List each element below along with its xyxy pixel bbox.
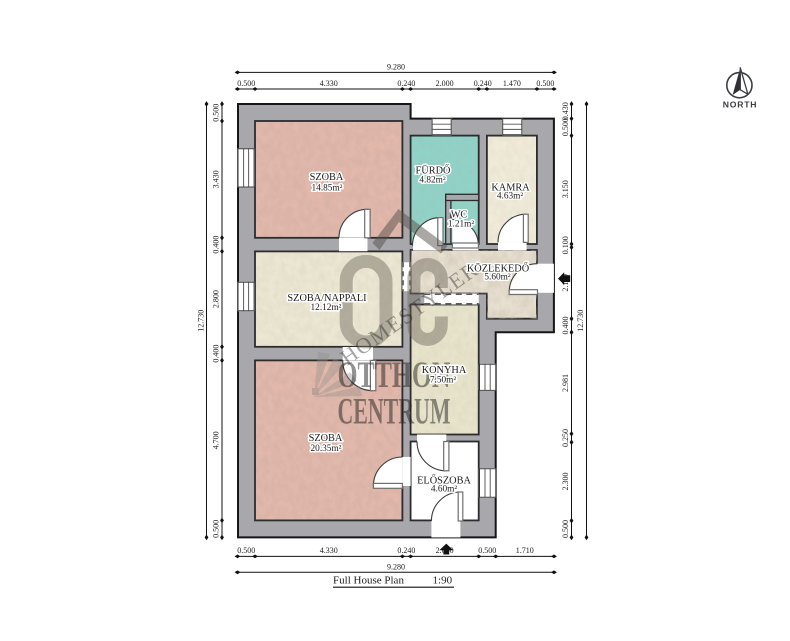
svg-text:SZOBA: SZOBA bbox=[309, 433, 343, 444]
svg-text:0.500: 0.500 bbox=[237, 79, 255, 88]
svg-text:1.470: 1.470 bbox=[503, 79, 521, 88]
svg-text:12.730: 12.730 bbox=[576, 310, 585, 332]
svg-text:0.400: 0.400 bbox=[561, 317, 570, 335]
svg-text:20.35m²: 20.35m² bbox=[311, 444, 342, 454]
svg-text:0.500: 0.500 bbox=[561, 520, 570, 538]
svg-text:0.400: 0.400 bbox=[212, 236, 221, 254]
svg-text:1.710: 1.710 bbox=[516, 546, 534, 555]
svg-text:2.000: 2.000 bbox=[436, 79, 454, 88]
svg-text:3.150: 3.150 bbox=[561, 180, 570, 198]
svg-text:1:90: 1:90 bbox=[433, 575, 453, 587]
svg-text:4.700: 4.700 bbox=[212, 431, 221, 449]
svg-text:1.21m²: 1.21m² bbox=[448, 220, 475, 230]
svg-text:2.300: 2.300 bbox=[561, 473, 570, 491]
svg-text:4.330: 4.330 bbox=[320, 546, 338, 555]
svg-text:3.430: 3.430 bbox=[212, 170, 221, 188]
svg-text:0.500: 0.500 bbox=[237, 546, 255, 555]
svg-text:0.240: 0.240 bbox=[397, 79, 415, 88]
svg-text:0.500: 0.500 bbox=[212, 520, 221, 538]
svg-text:12.730: 12.730 bbox=[197, 310, 206, 332]
svg-text:4.63m²: 4.63m² bbox=[497, 192, 524, 202]
svg-text:0.250: 0.250 bbox=[561, 429, 570, 447]
svg-text:0.100: 0.100 bbox=[561, 236, 570, 254]
svg-text:0.430: 0.430 bbox=[561, 102, 570, 120]
svg-text:0.500: 0.500 bbox=[561, 118, 570, 136]
svg-text:4.82m²: 4.82m² bbox=[419, 175, 446, 185]
svg-text:0.500: 0.500 bbox=[478, 546, 496, 555]
svg-text:Full House Plan: Full House Plan bbox=[333, 575, 404, 587]
svg-text:9.280: 9.280 bbox=[387, 63, 405, 72]
svg-text:9.280: 9.280 bbox=[387, 563, 405, 572]
svg-text:CENTRUM: CENTRUM bbox=[338, 392, 451, 433]
svg-text:0.240: 0.240 bbox=[397, 546, 415, 555]
svg-text:NORTH: NORTH bbox=[723, 100, 758, 110]
svg-text:0.500: 0.500 bbox=[212, 104, 221, 122]
svg-text:0.240: 0.240 bbox=[474, 79, 492, 88]
svg-text:2.800: 2.800 bbox=[212, 290, 221, 308]
svg-text:14.85m²: 14.85m² bbox=[312, 183, 343, 193]
svg-text:12.12m²: 12.12m² bbox=[311, 303, 342, 313]
svg-text:2.981: 2.981 bbox=[561, 374, 570, 392]
svg-text:7.50m²: 7.50m² bbox=[430, 375, 457, 385]
svg-text:0.400: 0.400 bbox=[212, 345, 221, 363]
svg-text:5.60m²: 5.60m² bbox=[484, 273, 511, 283]
svg-text:0.500: 0.500 bbox=[536, 79, 554, 88]
svg-text:4.60m²: 4.60m² bbox=[431, 484, 458, 494]
svg-text:4.330: 4.330 bbox=[320, 79, 338, 88]
svg-text:SZOBA: SZOBA bbox=[310, 172, 344, 183]
